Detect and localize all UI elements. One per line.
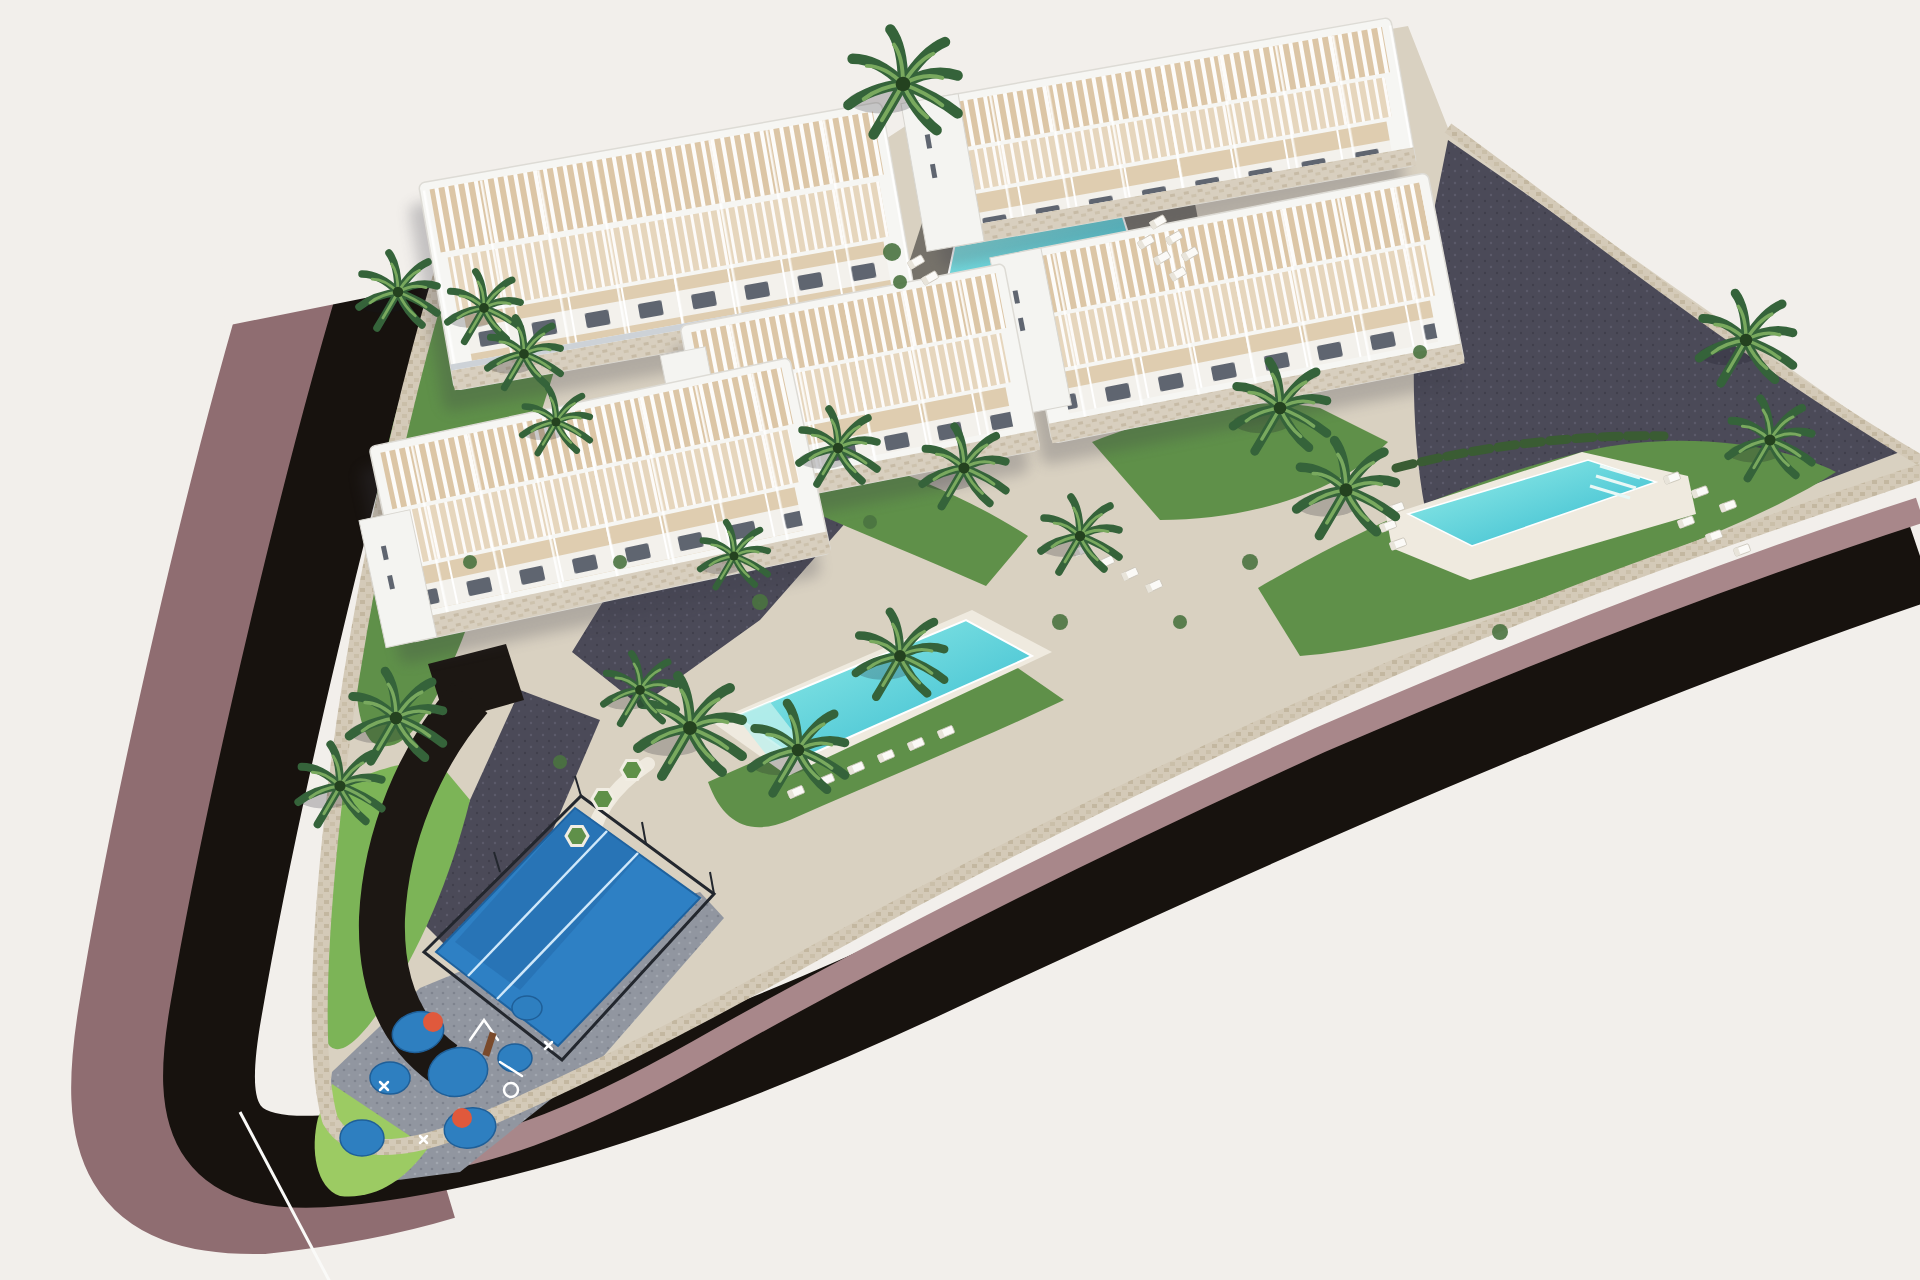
shrub xyxy=(463,555,477,569)
shrub xyxy=(1173,615,1187,629)
hex-planter xyxy=(592,790,614,809)
shrub xyxy=(1492,624,1508,640)
shrub xyxy=(1052,614,1068,630)
shrub xyxy=(863,515,877,529)
shrub xyxy=(553,755,567,769)
render-canvas: Aerial 3D architectural render of a resi… xyxy=(0,0,1920,1280)
shrub xyxy=(752,594,768,610)
shrub xyxy=(1413,345,1427,359)
aerial-render: Aerial 3D architectural render of a resi… xyxy=(0,0,1920,1280)
shrub xyxy=(893,275,907,289)
hex-planter xyxy=(621,761,643,780)
shrub xyxy=(883,243,901,261)
shrub xyxy=(1242,554,1258,570)
hex-planter xyxy=(566,827,588,846)
shrub xyxy=(613,555,627,569)
